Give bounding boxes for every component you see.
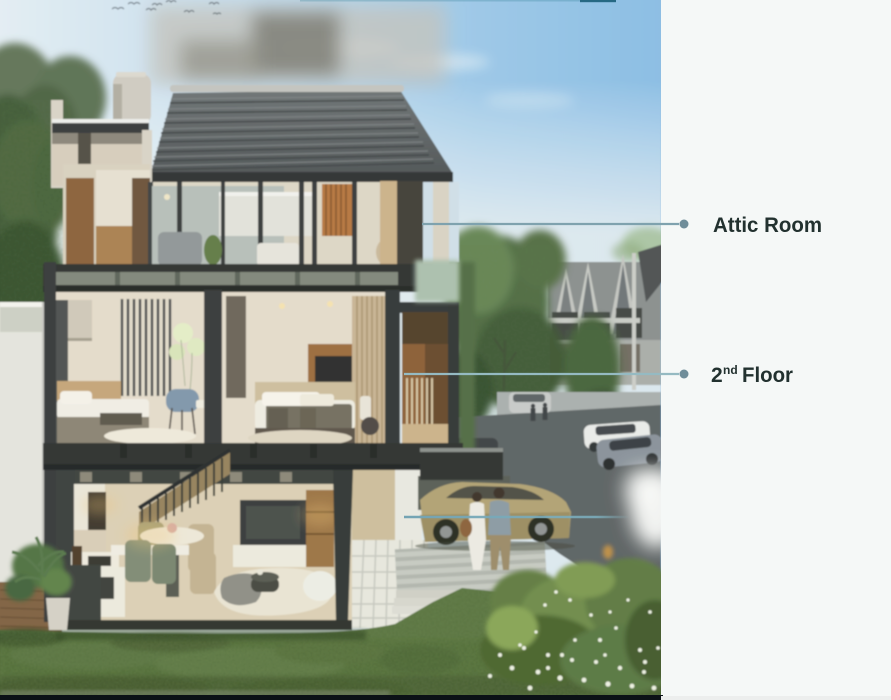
svg-text:nd: nd <box>723 363 738 377</box>
svg-text:2: 2 <box>711 364 723 387</box>
svg-text:Attic Room: Attic Room <box>713 214 822 237</box>
svg-text:Floor: Floor <box>742 364 793 387</box>
